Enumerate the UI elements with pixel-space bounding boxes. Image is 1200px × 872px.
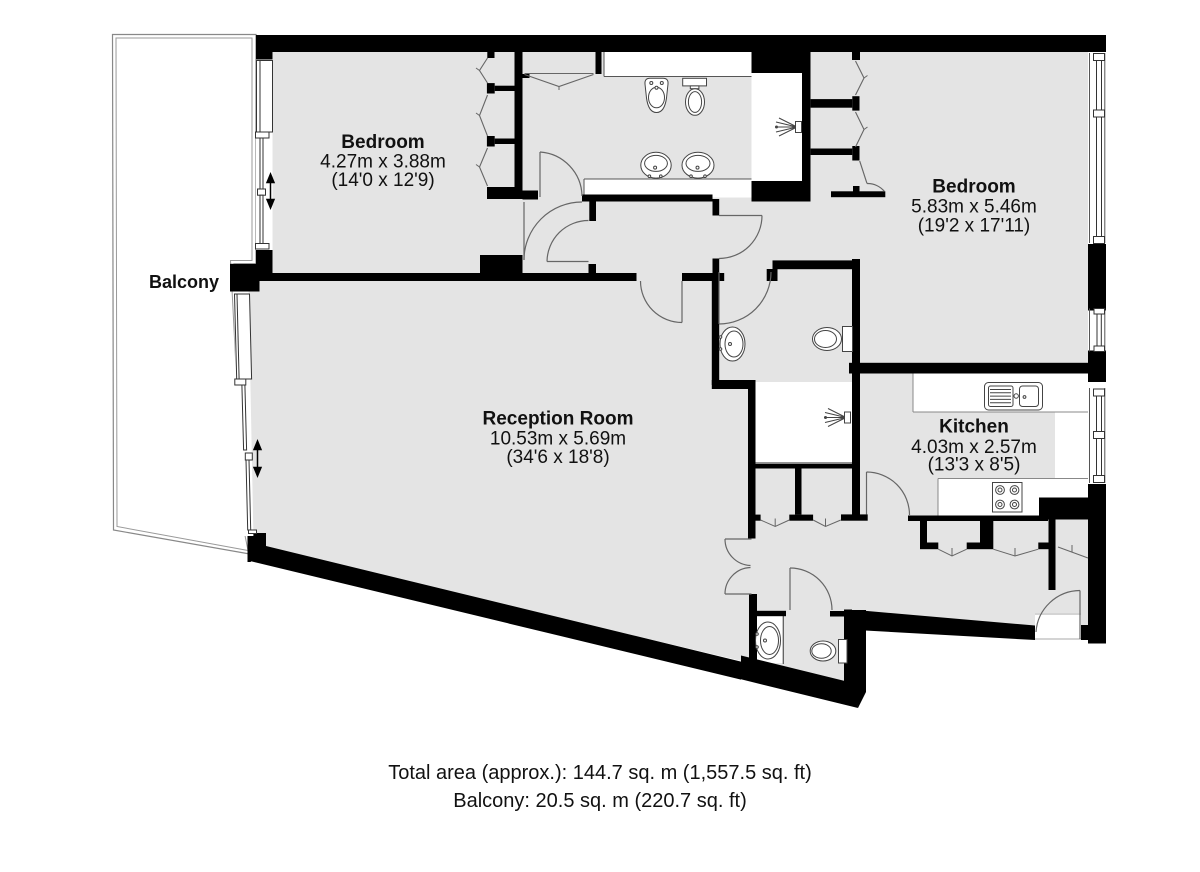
svg-text:Bedroom: Bedroom: [932, 177, 1015, 198]
svg-text:Kitchen: Kitchen: [939, 417, 1009, 438]
svg-text:(14'0 x 12'9): (14'0 x 12'9): [331, 170, 434, 191]
svg-text:Total area (approx.): 144.7 sq: Total area (approx.): 144.7 sq. m (1,557…: [388, 762, 812, 784]
svg-text:Balcony: 20.5 sq. m (220.7 sq.: Balcony: 20.5 sq. m (220.7 sq. ft): [453, 790, 746, 812]
svg-text:Bedroom: Bedroom: [341, 132, 424, 153]
svg-text:(19'2 x 17'11): (19'2 x 17'11): [918, 216, 1031, 237]
svg-text:(34'6 x 18'8): (34'6 x 18'8): [506, 447, 609, 468]
svg-text:Reception Room: Reception Room: [483, 409, 634, 430]
svg-text:(13'3 x 8'5): (13'3 x 8'5): [928, 455, 1021, 476]
svg-text:5.83m x 5.46m: 5.83m x 5.46m: [911, 196, 1037, 217]
svg-text:Balcony: Balcony: [149, 272, 219, 292]
